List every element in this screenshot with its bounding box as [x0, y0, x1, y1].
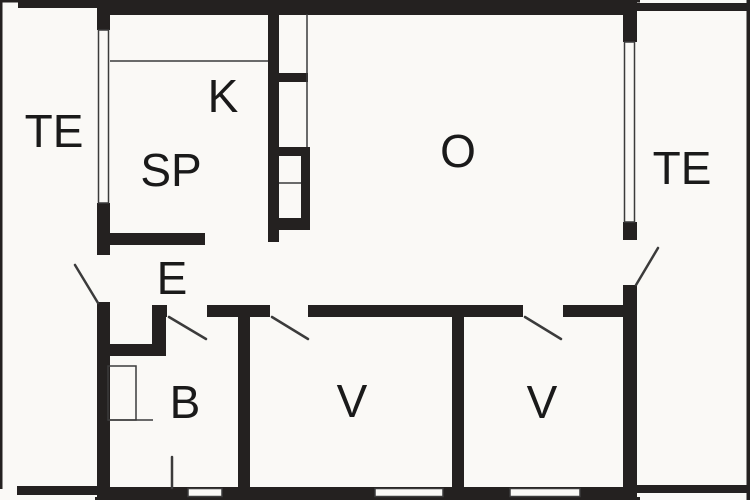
- door-terrace-left-swing: [75, 265, 98, 303]
- floorplan: TE K SP O TE E B V V: [0, 0, 750, 500]
- room-label-terrace-right: TE: [653, 145, 712, 191]
- wall-bath-bedroom-divider: [238, 305, 250, 487]
- wall-kitchen-main: [268, 1, 279, 242]
- terrace-edges: [17, 2, 747, 495]
- wall-west-upper: [97, 1, 110, 30]
- room-label-bedroom-v1: V: [337, 378, 368, 424]
- wall-north: [97, 1, 637, 15]
- window-west: [99, 30, 109, 203]
- frame-right: [747, 0, 750, 500]
- wall-bedroom-divider: [452, 317, 464, 487]
- door-bedroom-v1-swing: [272, 317, 308, 339]
- wall-sp-south: [110, 233, 205, 245]
- wall-west-mid: [97, 203, 110, 255]
- wall-kitchen-bar1: [268, 73, 308, 82]
- room-label-kitchen: K: [208, 73, 239, 119]
- bathroom-fixture: [108, 366, 136, 420]
- room-label-entry: E: [157, 255, 188, 301]
- outer-frame: [0, 0, 750, 500]
- room-label-bathroom: B: [170, 379, 201, 425]
- room-label-terrace-left: TE: [25, 108, 84, 154]
- window-east: [625, 42, 635, 222]
- window-south-bedroom-v2: [510, 489, 580, 497]
- wall-corridor-seg4: [563, 305, 637, 317]
- door-south-bathroom: [188, 489, 222, 497]
- door-bedroom-v2-swing: [525, 317, 561, 339]
- frame-left: [0, 0, 3, 489]
- door-terrace-right-swing: [636, 248, 658, 285]
- room-label-living-room: O: [440, 128, 476, 174]
- terrace-right-bottom-edge: [635, 485, 747, 493]
- room-label-bedroom-sp: SP: [140, 147, 201, 193]
- wall-entry-niche-bottom: [107, 344, 166, 356]
- terrace-right-top-edge: [637, 3, 747, 11]
- window-south-bedroom-v1: [375, 489, 443, 497]
- wall-kitchen-bar3: [268, 218, 310, 230]
- terrace-left-bottom-edge: [17, 486, 97, 495]
- room-label-bedroom-v2: V: [527, 379, 558, 425]
- wall-kitchen-right: [301, 147, 310, 230]
- terrace-left-top-edge: [18, 2, 97, 8]
- wall-east-upper: [623, 1, 637, 42]
- floorplan-drawing: [0, 0, 750, 500]
- wall-east-mid: [623, 222, 637, 240]
- door-bathroom-swing: [169, 317, 206, 339]
- wall-corridor-seg3: [308, 305, 523, 317]
